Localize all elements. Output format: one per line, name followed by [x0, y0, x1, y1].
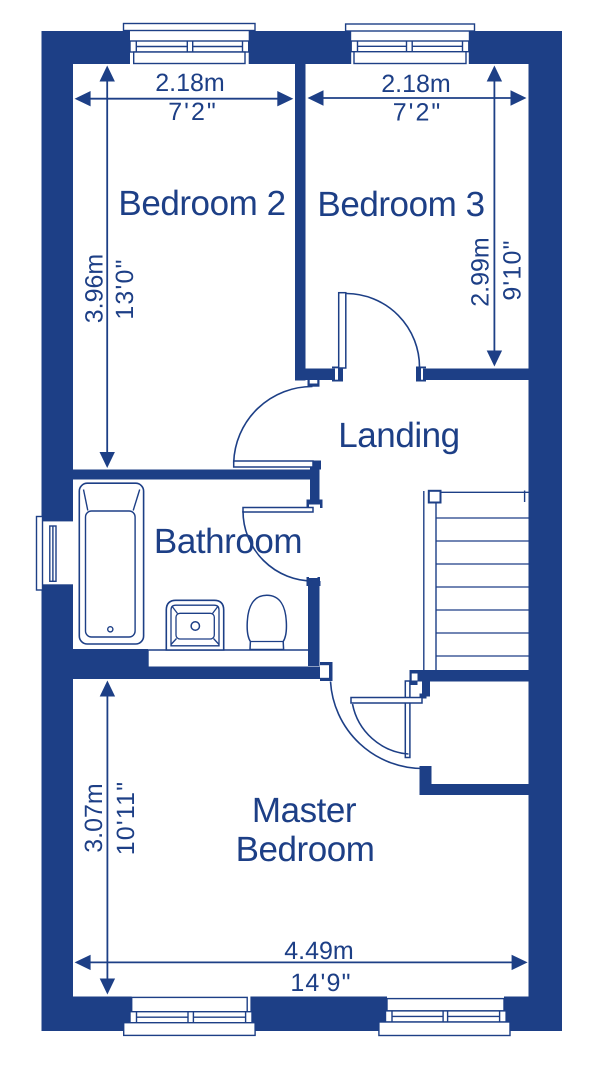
svg-text:14'9": 14'9" — [290, 969, 351, 997]
svg-text:3.96m: 3.96m — [81, 254, 109, 323]
svg-text:7'2": 7'2" — [393, 99, 442, 127]
svg-text:Landing: Landing — [338, 416, 459, 455]
svg-text:4.49m: 4.49m — [284, 937, 353, 965]
svg-text:Master: Master — [252, 791, 357, 830]
svg-text:Bedroom: Bedroom — [236, 830, 375, 869]
svg-text:Bedroom 2: Bedroom 2 — [118, 184, 285, 223]
svg-text:9'10": 9'10" — [499, 239, 527, 300]
svg-text:Bathroom: Bathroom — [154, 522, 302, 561]
svg-text:13'0": 13'0" — [111, 258, 139, 319]
svg-text:10'11": 10'11" — [112, 781, 140, 856]
svg-text:2.18m: 2.18m — [155, 69, 224, 97]
svg-text:2.99m: 2.99m — [467, 237, 495, 306]
svg-text:7'2": 7'2" — [168, 98, 217, 126]
svg-text:2.18m: 2.18m — [381, 70, 450, 98]
svg-text:Bedroom 3: Bedroom 3 — [317, 185, 484, 224]
svg-text:3.07m: 3.07m — [80, 783, 108, 852]
